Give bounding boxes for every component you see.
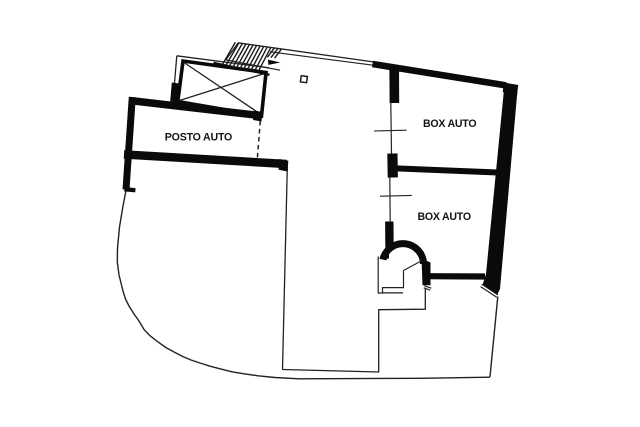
svg-text:BOX AUTO: BOX AUTO	[423, 118, 476, 130]
svg-text:BOX AUTO: BOX AUTO	[418, 211, 471, 223]
svg-text:POSTO AUTO: POSTO AUTO	[165, 132, 232, 144]
